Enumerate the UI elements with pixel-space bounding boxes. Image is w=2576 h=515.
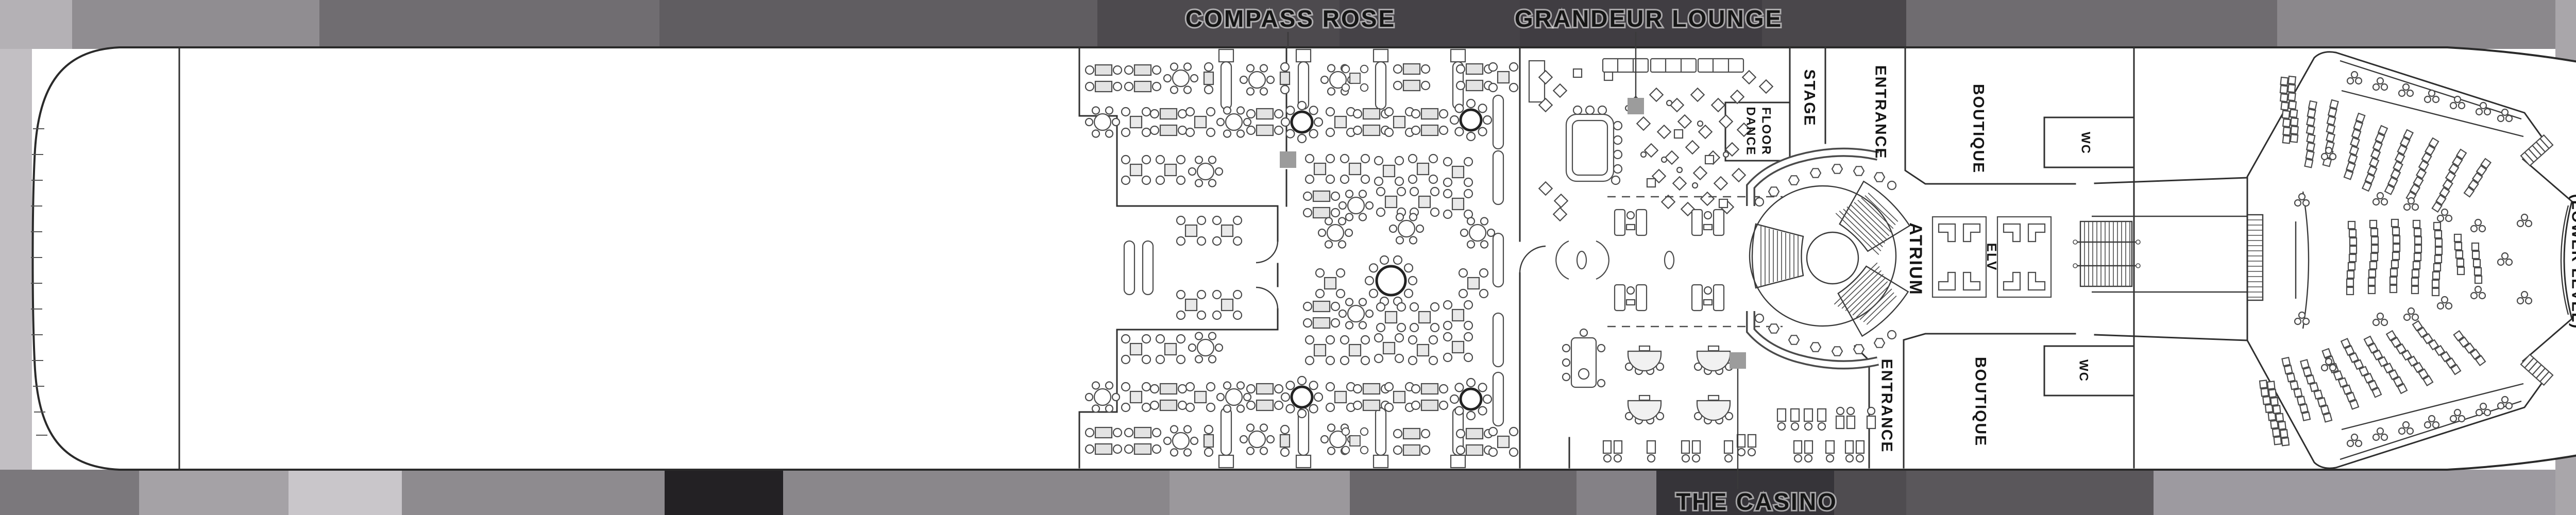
label-grandeur-lounge: GRANDEUR LOUNGE (1515, 5, 1783, 32)
label-the-casino: THE CASINO (1676, 488, 1838, 515)
leader-square-compass (1280, 151, 1296, 168)
label-boutique-top: BOUTIQUE (1970, 84, 1987, 174)
label-wc-bottom: WC (2077, 359, 2091, 382)
deck-plan-svg: COMPASS ROSE GRANDEUR LOUNGE THE CASINO … (0, 0, 2576, 515)
label-entrance-top: ENTRANCE (1872, 65, 1889, 160)
label-stage: STAGE (1801, 69, 1818, 126)
label-boutique-bottom: BOUTIQUE (1972, 357, 1989, 447)
leader-square-casino (1730, 352, 1746, 369)
label-atrium: ATRIUM (1906, 222, 1925, 296)
label-dance-floor-1: DANCE (1744, 107, 1758, 156)
label-wc-top: WC (2079, 132, 2093, 154)
label-theater-sublevel: (LOWER LEVEL) (2569, 194, 2576, 330)
deck-plan: COMPASS ROSE GRANDEUR LOUNGE THE CASINO … (0, 0, 2576, 515)
leader-square-grandeur (1628, 98, 1644, 114)
label-elv: ELV (1984, 243, 1999, 271)
label-compass-rose: COMPASS ROSE (1185, 5, 1396, 32)
label-dance-floor-2: FLOOR (1759, 107, 1773, 156)
label-entrance-bottom: ENTRANCE (1878, 359, 1895, 453)
